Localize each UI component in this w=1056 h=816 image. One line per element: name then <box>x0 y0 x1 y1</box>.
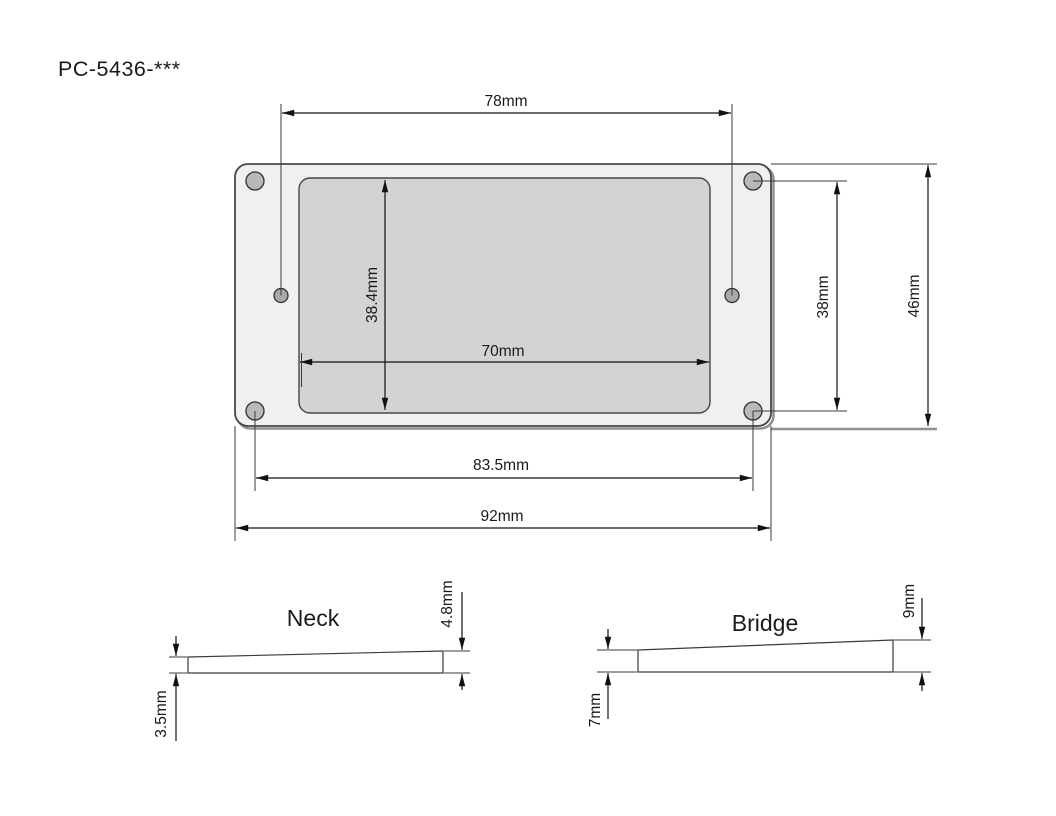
plate-top-view <box>235 164 774 429</box>
dimension-label: 4.8mm <box>439 580 456 627</box>
dimension-92mm: 92mm <box>235 426 771 541</box>
dimension-label: 3.5mm <box>153 690 170 737</box>
dimension-label: 38.4mm <box>364 267 381 323</box>
dimension-label: 83.5mm <box>473 457 529 474</box>
dimension-label: 70mm <box>481 343 524 360</box>
part-number-title: PC-5436-*** <box>58 57 181 81</box>
corner-hole-top-left <box>246 172 264 190</box>
dimension-46mm: 46mm <box>771 164 937 429</box>
neck-wedge <box>188 651 443 673</box>
dimension-label: 46mm <box>906 274 923 317</box>
dimension-label: 38mm <box>815 275 832 318</box>
neck-label: Neck <box>287 605 340 631</box>
technical-drawing-canvas: PC-5436-*** 78mm 38.4mm 70mm <box>0 0 1056 816</box>
bridge-wedge <box>638 640 893 672</box>
pickup-cavity <box>299 178 710 413</box>
dimension-label: 9mm <box>901 584 918 618</box>
dimension-label: 78mm <box>484 93 527 110</box>
dimension-label: 92mm <box>480 508 523 525</box>
bridge-profile: Bridge 7mm 9mm <box>587 584 931 727</box>
dimension-label: 7mm <box>587 693 604 727</box>
neck-profile: Neck 3.5mm 4.8mm <box>153 580 470 741</box>
bridge-label: Bridge <box>732 610 798 636</box>
